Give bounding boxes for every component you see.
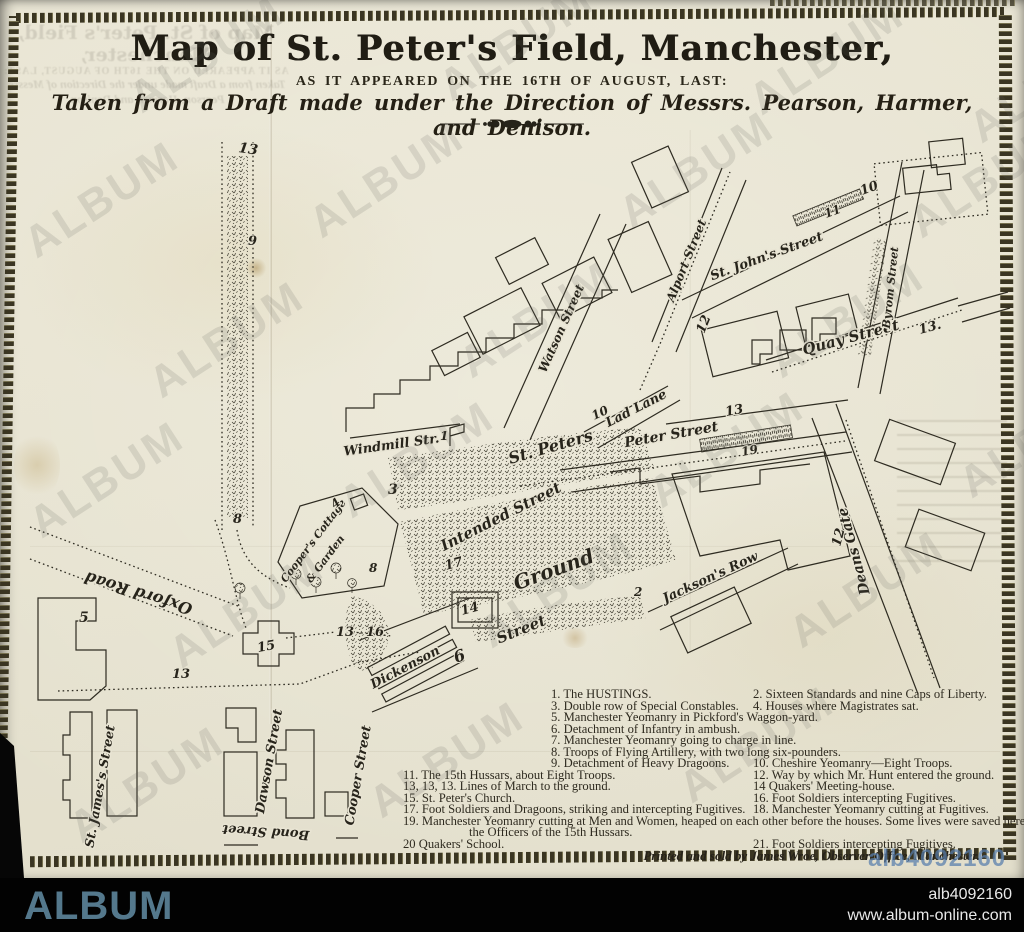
legend-row: 17. Foot Soldiers and Dragoons, striking… [403,802,1018,814]
image-id-watermark: alb4092160 [868,845,1006,873]
footer-bar: ALBUM alb4092160 www.album-online.com [0,878,1024,932]
legend-row: 7. Manchester Yeomanry going to charge i… [403,733,1018,745]
legend-row: 9. Detachment of Heavy Dragoons.10. Ches… [403,756,1018,768]
legend-row: 6. Detachment of Infantry in ambush. [403,722,1018,734]
verso-bleedthrough [897,420,1007,562]
paper-stain [14,430,60,500]
divider-ornament [0,117,1024,135]
paper-stain [560,628,590,648]
page-subtitle: AS IT APPEARED ON THE 16TH OF AUGUST, LA… [30,74,994,90]
legend-item-19: 19. Manchester Yeomanry cutting at Men a… [403,814,1018,826]
image-id: alb4092160 [847,884,1012,905]
page-title: Map of St. Peter's Field, Manchester, [30,28,994,69]
legend-row: 3. Double row of Special Constables.4. H… [403,699,1018,711]
legend-row: 5. Manchester Yeomanry in Pickford's Wag… [403,710,1018,722]
scanned-map-page: Map of St. Peter's Field, Manchester, AS… [0,0,1024,932]
decorative-border-top-edge [770,0,1016,6]
legend-row: 15. St. Peter's Church.16. Foot Soldiers… [403,791,1018,803]
paper-stain [245,258,267,278]
legend-row: 8. Troops of Flying Artillery, with two … [403,745,1018,757]
legend-item-19-cont: the Officers of the 15th Hussars. [403,825,1018,837]
legend-row: 13, 13, 13. Lines of March to the ground… [403,779,1018,791]
website-link[interactable]: www.album-online.com [847,905,1012,926]
fold-crease [30,545,1000,547]
map-legend: 1. The HUSTINGS.2. Sixteen Standards and… [403,687,1018,861]
album-logo: ALBUM [24,884,173,929]
legend-row: 1. The HUSTINGS.2. Sixteen Standards and… [403,687,1018,699]
fold-crease [688,130,691,650]
legend-row: 11. The 15th Hussars, about Eight Troops… [403,768,1018,780]
